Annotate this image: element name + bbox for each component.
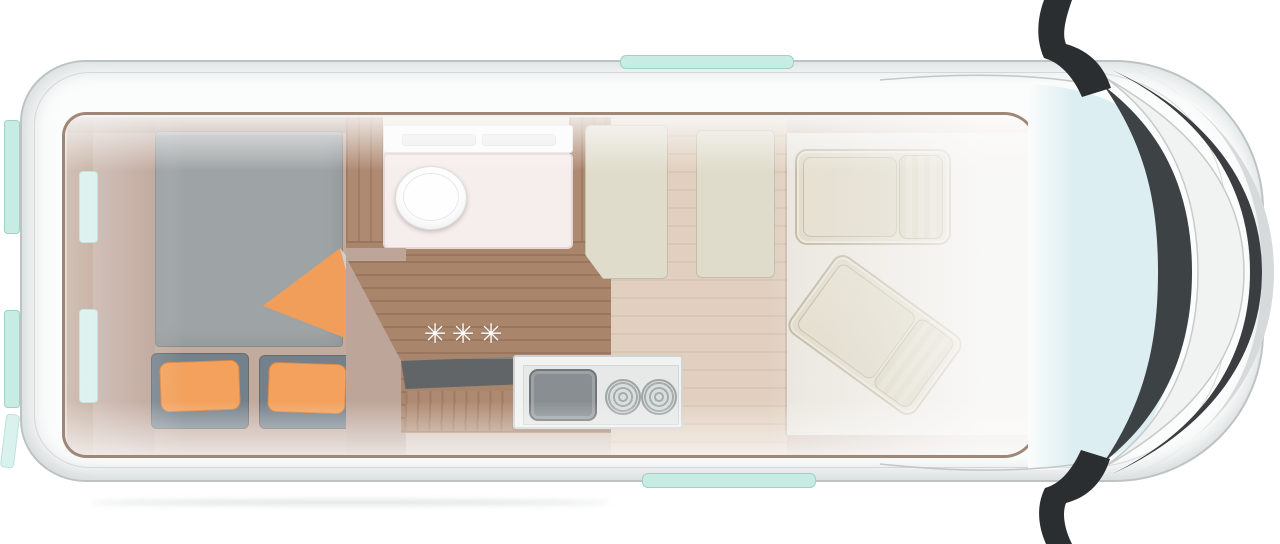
van-front-assembly [0,0,1280,544]
windshield-haze [1028,82,1074,470]
campervan-floorplan: ✳ ✳ ✳ [0,0,1280,544]
